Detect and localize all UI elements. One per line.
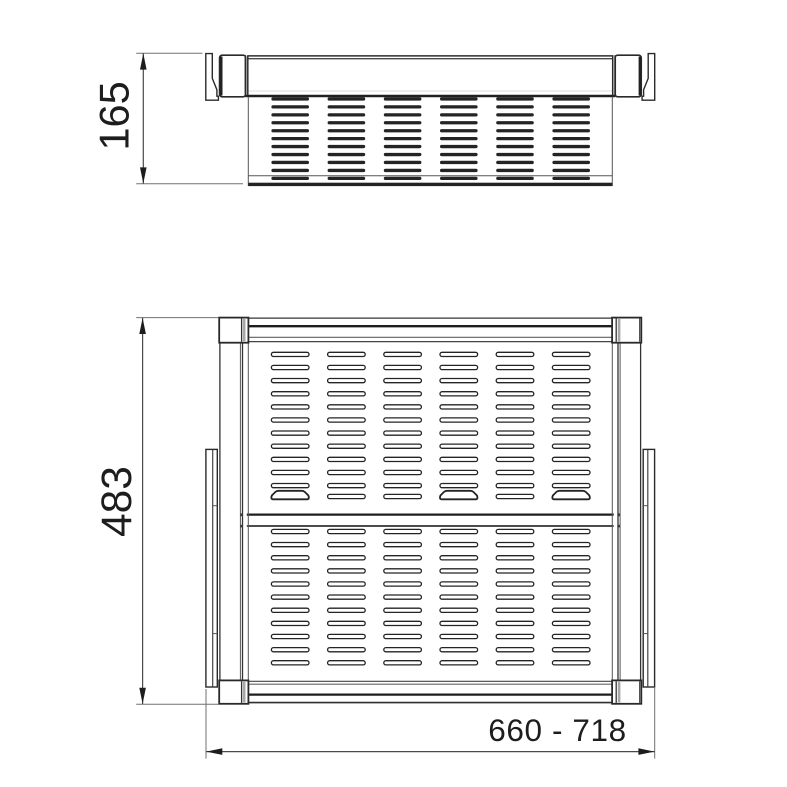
svg-text:483: 483: [94, 466, 141, 537]
svg-text:660 - 718: 660 - 718: [488, 712, 627, 748]
svg-text:165: 165: [90, 81, 137, 150]
